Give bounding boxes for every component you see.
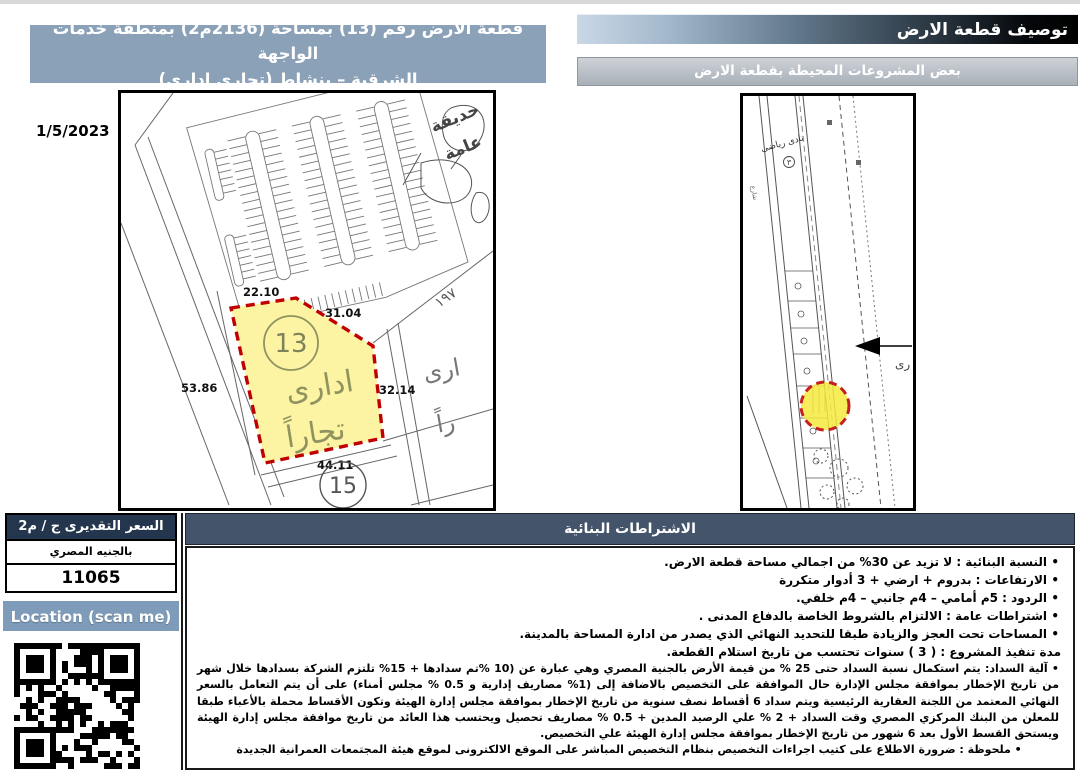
plot-13-number: 13 xyxy=(274,329,307,359)
note-line: ملحوظة : ضرورة الاطلاع على كتيب اجراءات … xyxy=(197,742,1061,759)
requirements-box: النسبة البنائية : لا تزيد عن 30% من اجما… xyxy=(185,546,1075,770)
plot-title-banner: قطعة الارض رقم (13) بمساحة (2136م2) بمنط… xyxy=(30,25,546,83)
site-plots xyxy=(785,271,834,478)
site-trees xyxy=(814,449,863,508)
requirement-item: الارتفاعات : بدروم + ارضي + 3 أدوار متكر… xyxy=(197,571,1061,589)
corner-number-label: ١٩٧ xyxy=(432,285,460,311)
location-button[interactable]: Location (scan me) xyxy=(3,601,179,631)
page: توصيف قطعة الارض بعض المشروعات المحيطة ب… xyxy=(0,0,1080,772)
plot-map-drawing: حديقة عامة ١٩٧ 13 ادارى تجاراً 22.10 31.… xyxy=(121,93,493,508)
dim-left: 53.86 xyxy=(181,381,217,395)
qr-code-image xyxy=(14,643,140,769)
dim-top: 22.10 xyxy=(243,285,279,299)
garden-label-1: حديقة xyxy=(428,100,483,138)
plot-15-number: 15 xyxy=(329,474,357,499)
requirements-header: الاشتراطات البنائية xyxy=(185,513,1075,545)
page-title: توصيف قطعة الارض xyxy=(897,20,1068,40)
vertical-divider xyxy=(181,513,183,770)
requirement-item: النسبة البنائية : لا تزيد عن 30% من اجما… xyxy=(197,553,1061,571)
site-marker-square-2 xyxy=(856,160,861,165)
price-table: السعر التقديرى ج / م2 بالجنيه المصري 110… xyxy=(5,513,177,593)
dim-bottom: 44.11 xyxy=(317,458,353,472)
price-table-header: السعر التقديرى ج / م2 xyxy=(5,513,177,541)
top-border-strip xyxy=(0,0,1080,4)
site-map-drawing: نادى رياضى ٣ شارع رى xyxy=(743,96,913,508)
price-value-cell: 11065 xyxy=(5,565,177,593)
street-label: شارع xyxy=(749,185,759,201)
requirement-item: الردود : 5م أمامي – 4م جانبي – 4م خلفي. xyxy=(197,589,1061,607)
parking-lot-lines xyxy=(186,93,472,332)
dim-upper-right: 31.04 xyxy=(325,306,361,320)
club-number: ٣ xyxy=(787,158,792,167)
price-currency-cell: بالجنيه المصري xyxy=(5,541,177,565)
surrounding-projects-label: بعض المشروعات المحيطة بقطعة الارض xyxy=(694,63,961,79)
requirement-item: المساحات تحت العجز والزيادة طبقا للتحديد… xyxy=(197,625,1061,643)
location-highlight-circle[interactable] xyxy=(801,382,849,430)
date-label: 1/5/2023 xyxy=(36,122,110,140)
garden-label-2: عامة xyxy=(441,132,485,165)
plot-map: حديقة عامة ١٩٧ 13 ادارى تجاراً 22.10 31.… xyxy=(118,90,496,511)
dim-right: 32.14 xyxy=(379,383,415,397)
site-roads xyxy=(747,96,895,508)
site-map: نادى رياضى ٣ شارع رى xyxy=(740,93,916,511)
project-duration-line: مدة تنفيذ المشروع : ( 3 ) سنوات تحتسب من… xyxy=(197,643,1061,661)
site-marker-square-1 xyxy=(827,120,832,125)
requirement-item: اشتراطات عامة : الالتزام بالشروط الخاصة … xyxy=(197,607,1061,625)
payment-terms-paragraph: آلية السداد: يتم استكمال نسبة السداد حتى… xyxy=(197,661,1061,742)
plot-title-line1: قطعة الارض رقم (13) بمساحة (2136م2) بمنط… xyxy=(30,16,546,67)
partial-label-2: راً xyxy=(433,405,457,439)
arrow-side-label: رى xyxy=(895,357,910,372)
qr-code xyxy=(14,643,140,769)
surrounding-projects-bar: بعض المشروعات المحيطة بقطعة الارض xyxy=(577,57,1078,86)
requirements-title: الاشتراطات البنائية xyxy=(564,521,696,537)
partial-label-1: ارى xyxy=(421,353,462,387)
section-header-bar: توصيف قطعة الارض xyxy=(577,14,1078,44)
plot-title-line2: الشرقية – بنشاط (تجارى ادارى) xyxy=(30,67,546,93)
club-label: نادى رياضى xyxy=(760,134,805,155)
